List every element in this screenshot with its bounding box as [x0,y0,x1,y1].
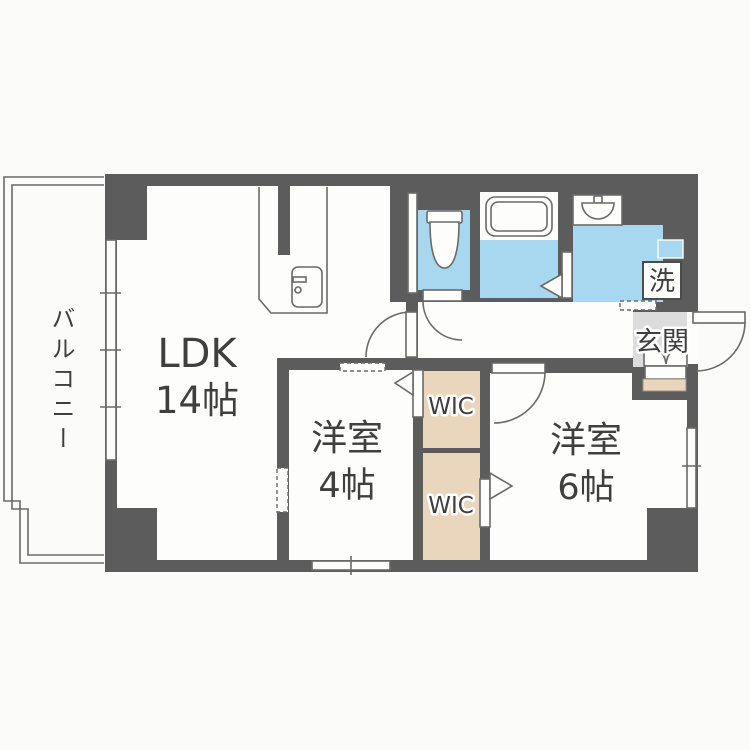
wic-bottom-label: WIC [428,493,474,519]
ldk-size-label: 14帖 [155,379,239,422]
entrance-step [645,366,686,379]
kitchen-wall-stub [278,186,290,255]
bedroom4-size-label: 4帖 [318,466,375,506]
corridor [418,302,633,358]
dashed-opening-washroom [620,301,656,310]
toilet-door-leaf [423,290,462,301]
entrance-door-leaf [693,312,745,323]
entrance-label: 玄関 [635,327,689,358]
bedroom6-label: 洋室 [550,420,622,461]
bedroom4-label: 洋室 [311,418,383,459]
kitchen-faucet-knob [295,287,301,293]
balcony-label: バルコニー [47,306,75,456]
kitchen-faucet [293,277,306,282]
right-window-glass [687,428,696,508]
floor-plan-drawing: バルコニー [0,0,750,750]
wic-bottom-door-leaf [480,479,490,527]
bathroom-door-leaf [562,252,572,298]
bathtub [486,197,552,236]
balcony: バルコニー [4,177,104,563]
dashed-opening-bedroom4 [340,363,385,371]
bedroom6-size-label: 6帖 [557,468,614,508]
bedroom-4-room [289,370,413,560]
bedroom6-door-leaf [492,363,545,373]
corner-pillar [105,508,157,572]
floor-plan-page: バルコニー [0,0,750,750]
ldk-door-leaf [406,312,417,357]
bathtub-inner [491,202,547,231]
laundry-box: 洗 [643,262,681,299]
dashed-opening-ldk [277,468,288,512]
ldk-label: LDK [157,331,238,377]
laundry-label: 洗 [649,267,675,297]
wic-top-door-leaf [413,370,423,417]
entrance-door-arc [696,322,745,371]
entrance-shoe-ledge [643,379,686,391]
wic-top-label: WIC [428,394,474,420]
washroom-step [658,240,683,258]
toilet-side-niche [408,193,417,293]
entrance-door [687,312,745,371]
basin-tap [594,196,602,203]
